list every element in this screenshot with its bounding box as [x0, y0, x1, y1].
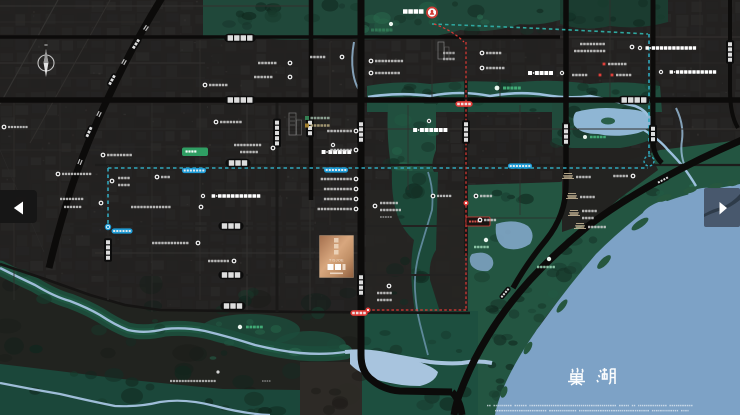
svg-text:TISJOE: TISJOE [329, 259, 344, 263]
